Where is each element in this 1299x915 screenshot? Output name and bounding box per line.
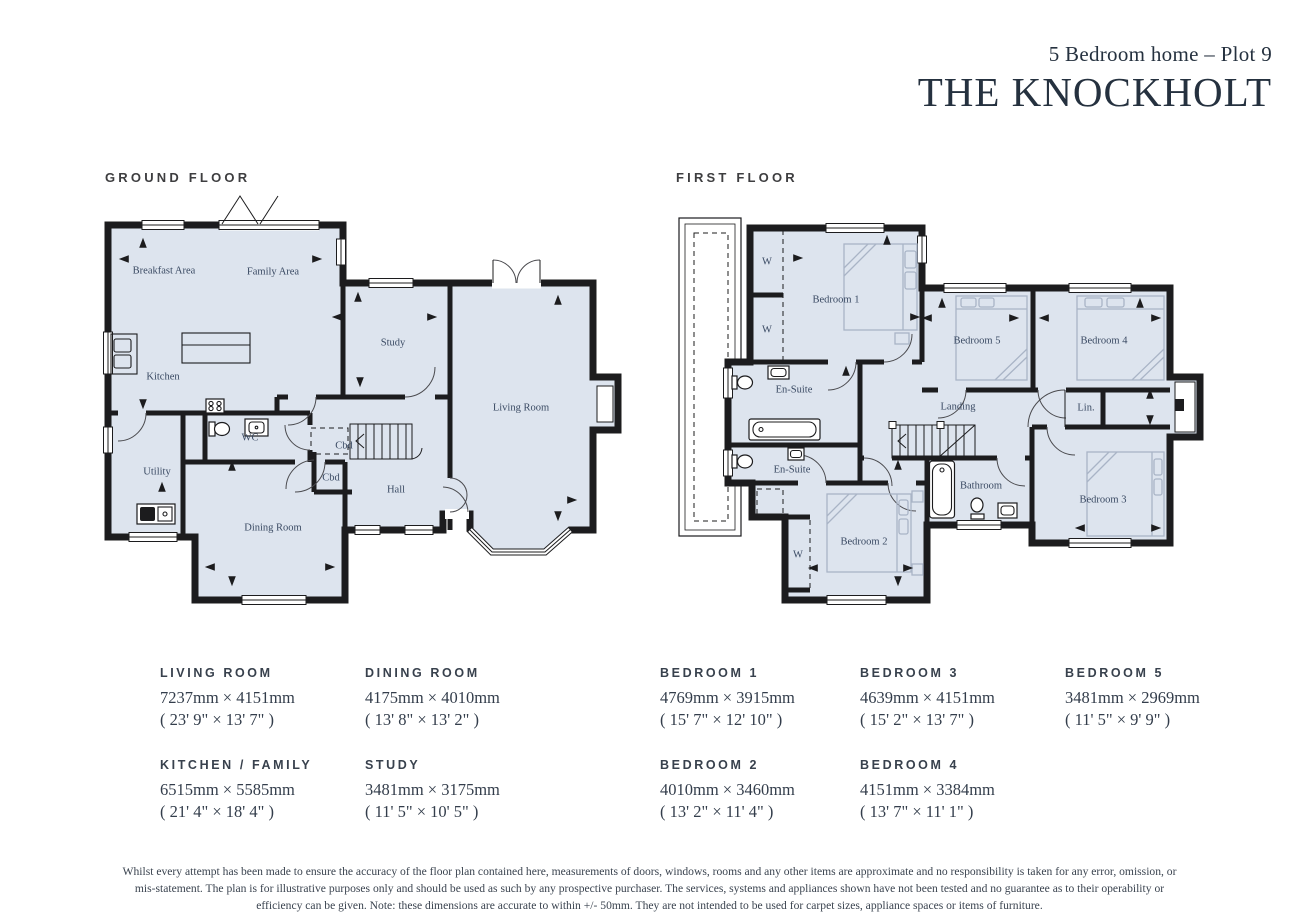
- first-floor-plan: [679, 218, 1200, 605]
- room-label-en-suite-2: En-Suite: [774, 465, 811, 476]
- room-label-bedroom-1: Bedroom 1: [813, 295, 860, 306]
- room-label-bedroom-2: Bedroom 2: [841, 537, 888, 548]
- room-label-living-room: Living Room: [493, 403, 549, 414]
- room-label-study: Study: [381, 338, 406, 349]
- room-label-bathroom: Bathroom: [960, 481, 1002, 492]
- dim-dining-room: DINING ROOM 4175mm × 4010mm ( 13' 8" × 1…: [365, 666, 500, 731]
- dim-living-room: LIVING ROOM 7237mm × 4151mm ( 23' 9" × 1…: [160, 666, 312, 731]
- dims-column-4: BEDROOM 3 4639mm × 4151mm ( 15' 2" × 13'…: [860, 666, 995, 850]
- room-label-kitchen: Kitchen: [146, 372, 179, 383]
- room-label-wardrobe-2: W: [762, 325, 772, 336]
- dim-bedroom-2: BEDROOM 2 4010mm × 3460mm ( 13' 2" × 11'…: [660, 758, 795, 823]
- dims-column-5: BEDROOM 5 3481mm × 2969mm ( 11' 5" × 9' …: [1065, 666, 1200, 758]
- ground-floor-plan: [104, 196, 619, 605]
- room-label-landing: Landing: [941, 402, 976, 413]
- room-label-linen: Lin.: [1077, 403, 1094, 414]
- room-label-utility: Utility: [143, 467, 170, 478]
- room-label-hall: Hall: [387, 485, 405, 496]
- room-label-dining-room: Dining Room: [244, 523, 301, 534]
- dim-bedroom-4: BEDROOM 4 4151mm × 3384mm ( 13' 7" × 11'…: [860, 758, 995, 823]
- room-label-cbd: Cbd: [322, 473, 340, 484]
- dim-study: STUDY 3481mm × 3175mm ( 11' 5" × 10' 5" …: [365, 758, 500, 823]
- dim-bedroom-3: BEDROOM 3 4639mm × 4151mm ( 15' 2" × 13'…: [860, 666, 995, 731]
- room-label-breakfast-area: Breakfast Area: [133, 266, 196, 277]
- room-label-wc: WC: [242, 433, 259, 444]
- room-label-wardrobe-1: W: [762, 257, 772, 268]
- dim-bedroom-1: BEDROOM 1 4769mm × 3915mm ( 15' 7" × 12'…: [660, 666, 795, 731]
- room-label-en-suite-1: En-Suite: [776, 385, 813, 396]
- room-label-cbd-understairs: Cbd: [335, 441, 353, 452]
- dim-bedroom-5: BEDROOM 5 3481mm × 2969mm ( 11' 5" × 9' …: [1065, 666, 1200, 731]
- room-label-bedroom-3: Bedroom 3: [1080, 495, 1127, 506]
- dim-kitchen-family: KITCHEN / FAMILY 6515mm × 5585mm ( 21' 4…: [160, 758, 312, 823]
- dims-column-1: LIVING ROOM 7237mm × 4151mm ( 23' 9" × 1…: [160, 666, 312, 850]
- disclaimer-text: Whilst every attempt has been made to en…: [121, 863, 1179, 915]
- room-label-wardrobe-3: W: [793, 550, 803, 561]
- floorplan-page: 5 Bedroom home – Plot 9 THE KNOCKHOLT GR…: [0, 0, 1299, 915]
- room-label-family-area: Family Area: [247, 267, 299, 278]
- dims-column-2: DINING ROOM 4175mm × 4010mm ( 13' 8" × 1…: [365, 666, 500, 850]
- room-label-bedroom-5: Bedroom 5: [954, 336, 1001, 347]
- dims-column-3: BEDROOM 1 4769mm × 3915mm ( 15' 7" × 12'…: [660, 666, 795, 850]
- room-label-bedroom-4: Bedroom 4: [1081, 336, 1128, 347]
